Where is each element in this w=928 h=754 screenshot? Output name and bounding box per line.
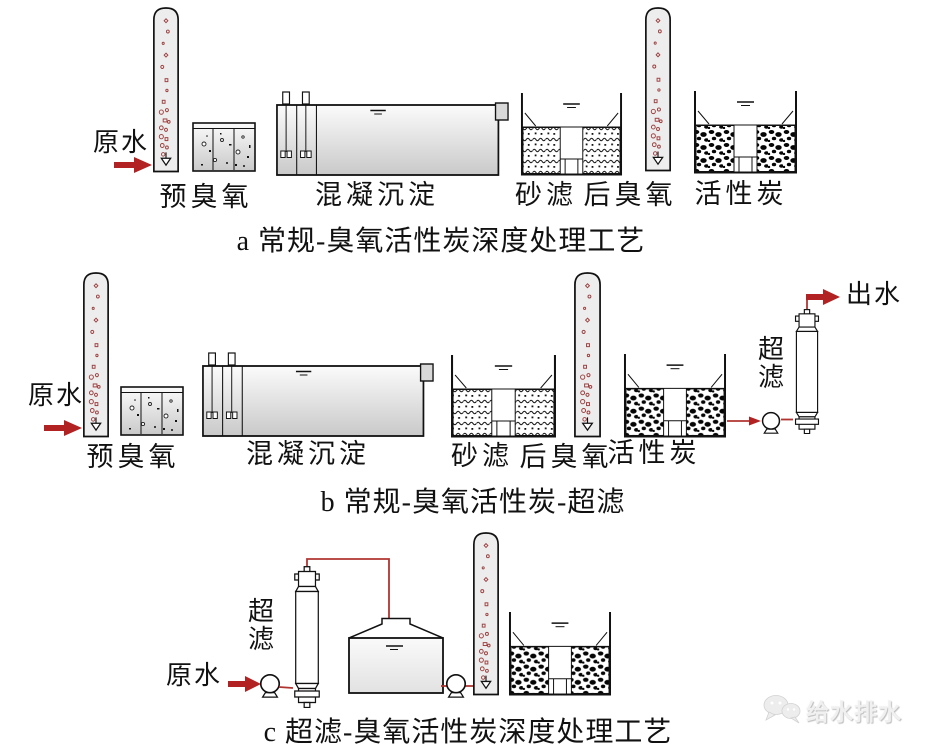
pump-b <box>763 413 780 434</box>
sand-filter-tank-a <box>522 93 621 175</box>
effluent-label-b: 出水 <box>842 281 906 310</box>
storage-tank-c <box>349 619 443 694</box>
pump-c1 <box>261 675 279 697</box>
watermark: 给水排水 <box>762 690 928 730</box>
sand-filter-label-a: 砂滤 <box>510 181 582 211</box>
post-ozone-column-a <box>646 8 670 171</box>
train-c <box>228 533 610 708</box>
process-diagram: 原水 预臭氧 混凝沉淀 砂滤 后臭氧 活性炭 a 常规-臭氧活性炭深度处理工艺 … <box>0 0 928 754</box>
uf-module-c <box>295 567 319 708</box>
uf-label-b: 超滤 <box>756 336 786 392</box>
process-caption-b: b 常规-臭氧活性炭-超滤 <box>190 480 756 520</box>
activated-carbon-tank-b <box>625 354 725 436</box>
wechat-icon <box>762 694 802 726</box>
effluent-arrow-b <box>806 289 840 305</box>
post-ozone-label-a: 后臭氧 <box>580 181 680 211</box>
activated-carbon-tank-c <box>510 612 610 694</box>
coagulation-label-b: 混凝沉淀 <box>234 440 382 470</box>
raw-water-label-a: 原水 <box>90 129 152 158</box>
pre-ozone-contact-tank-b <box>121 387 183 435</box>
activated-carbon-label-b: 活性炭 <box>606 439 702 469</box>
pre-ozone-label-b: 预臭氧 <box>80 443 186 473</box>
ozone-column-c <box>474 533 498 695</box>
coagulation-tank-a <box>277 92 508 175</box>
process-caption-a: a 常规-臭氧活性炭深度处理工艺 <box>160 219 722 259</box>
diagram-graphics <box>0 0 928 754</box>
coagulation-tank-b <box>203 353 433 436</box>
process-caption-c: c 超滤-臭氧活性炭深度处理工艺 <box>186 710 750 750</box>
pump-c2 <box>447 675 465 697</box>
raw-water-arrow-c <box>228 676 261 692</box>
pre-ozone-column-b <box>84 273 108 437</box>
flow-line-pump1-to-uf-c <box>279 687 293 688</box>
post-ozone-label-b: 后臭氧 <box>518 443 614 473</box>
raw-water-label-b: 原水 <box>26 382 86 411</box>
train-a <box>114 8 796 175</box>
pre-ozone-column-a <box>154 8 178 172</box>
sand-filter-tank-b <box>452 355 555 437</box>
raw-water-arrow-a <box>114 157 152 173</box>
raw-water-label-c: 原水 <box>164 662 224 691</box>
post-ozone-column-b <box>575 273 600 437</box>
pre-ozone-label-a: 预臭氧 <box>150 183 262 213</box>
raw-water-arrow-b <box>44 420 82 436</box>
pre-ozone-contact-tank-a <box>193 123 255 171</box>
activated-carbon-label-a: 活性炭 <box>682 180 800 210</box>
watermark-text: 给水排水 <box>806 693 902 727</box>
uf-module-b <box>796 310 819 434</box>
activated-carbon-tank-a <box>695 91 796 173</box>
flow-arrowhead-b <box>749 417 761 426</box>
coagulation-label-a: 混凝沉淀 <box>302 181 452 211</box>
train-b <box>44 273 840 437</box>
uf-label-c: 超滤 <box>246 598 276 654</box>
